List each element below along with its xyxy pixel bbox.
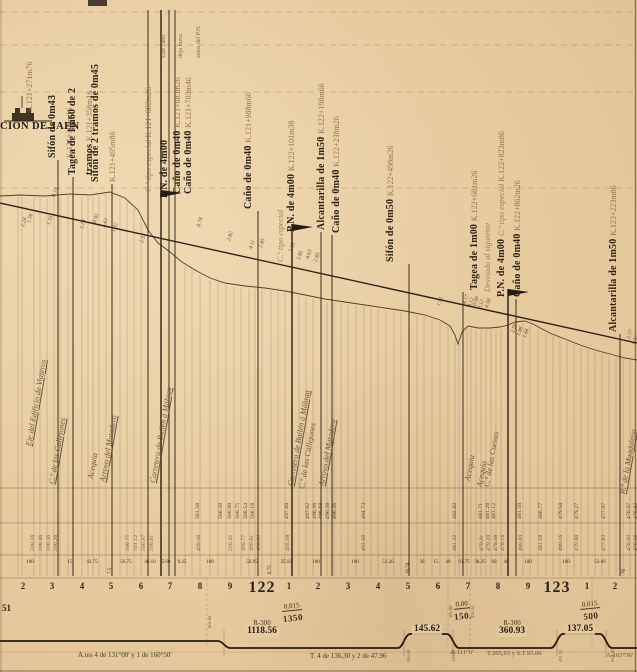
event-label: Sifón de 2 tramos de 0m45K.121+495m86 [85, 64, 120, 182]
elevation-value-terrain: 500.50 [218, 503, 224, 519]
elevation-value-grade: 481.32 [452, 535, 458, 551]
distance-value: 56.95 [246, 560, 257, 565]
elevation-value-grade: 500.75 [125, 535, 131, 551]
elevation-value-grade: 500.81 [149, 535, 155, 551]
event-label-text: Alcantarilla de 1m50 [608, 236, 619, 332]
event-label: Sifón de 0m50 K.122+498m26 [380, 146, 397, 262]
distance-value: 9.25 [178, 560, 187, 565]
elevation-value-grade: 481.68 [538, 535, 544, 551]
elevation-value-grade: 499.61 [249, 535, 255, 551]
curve-band-line [0, 634, 637, 648]
hectometer-number: 3 [346, 581, 351, 591]
distance-value: 51.26 [382, 560, 393, 565]
hectometer-number: 8 [496, 581, 501, 591]
segment-length: 137.05 [565, 625, 595, 635]
elevation-value-terrain: 482.82 [452, 503, 458, 519]
hectometer-number: 7 [466, 581, 471, 591]
curve-angle-note: T.205,93 y S.T.93.06 [487, 650, 541, 657]
distance-value: 100 [524, 560, 532, 565]
elevation-value-terrain: 496.38 [325, 503, 331, 519]
gradient-fraction: 0.015500 [566, 591, 615, 624]
hectometer-number: 6 [436, 581, 441, 591]
elevation-value-grade: 476.98 [633, 535, 637, 551]
event-label: K.121+271m76 [19, 61, 36, 112]
event-label-text: K.121+703m46 [184, 77, 193, 128]
elevation-value-grade: 498.80 [256, 535, 262, 551]
elevation-value-terrain: 500.16 [250, 503, 256, 519]
elevation-value-grade: 499.77 [241, 535, 247, 551]
curve-segment-label: R-3001118.56 [245, 620, 279, 637]
hectometer-number: 2 [21, 581, 26, 591]
elevation-value-grade: 478.16 [500, 535, 506, 551]
event-label-text: K.122+681m26 [470, 171, 479, 222]
elevation-value-grade: 500.46 [38, 535, 44, 551]
hectometer-number: 9 [228, 581, 233, 591]
distance-value: 100 [351, 560, 359, 565]
event-label: Caño de 0m40 K.121+703m46 [178, 77, 195, 194]
event-label-text: Caño de 0m40 [512, 231, 523, 297]
event-label-text: Caño de 0m40 [243, 143, 254, 209]
elevation-value-grade: 501.12 [133, 535, 139, 551]
hectometer-number: 9 [526, 581, 531, 591]
elevation-value-terrain: 494.73 [361, 503, 367, 519]
event-label: Alcantarilla de 1m50 K.123+223m86 [603, 185, 620, 332]
event-label-text: C.º tipo especial [497, 182, 506, 236]
distance-value: 61.75 [458, 560, 469, 565]
hectometer-number: 6 [139, 581, 144, 591]
elevation-value-terrain: 476.97 [626, 503, 632, 519]
curve-segment-label: 145.62 [412, 625, 442, 635]
elevation-value-grade: 500.35 [228, 535, 234, 551]
event-label: Caño de 0m40 K.122+862m26 [507, 180, 524, 297]
segment-length: 360.93 [497, 627, 527, 637]
distance-value: 15 [68, 560, 73, 565]
event-label-text: Sifón de 0m50 [385, 196, 396, 262]
event-label-text: deja fuera [178, 34, 184, 58]
event-label: Caño de 0m40 K.121+988m66 [238, 92, 255, 209]
segment-length: 1118.56 [245, 627, 279, 637]
event-label: P.N. de 4m00 K.122+101m38 [281, 121, 298, 232]
event-label-text: K.123+223m86 [609, 185, 618, 236]
elevation-value-grade: 479.88 [574, 535, 580, 551]
band-station: 456.44 [470, 606, 475, 618]
elevation-value-grade: 500.97 [141, 535, 147, 551]
distance-value: 53.66 [594, 560, 605, 565]
curve-angle-note: A-103°36' [606, 652, 633, 659]
elevation-value-terrain: 500.75 [235, 503, 241, 519]
event-label-text: P.N. de 4m00 [286, 171, 297, 232]
event-label-text: K.121+495m86 [108, 131, 117, 182]
elevation-value-grade: 477.83 [601, 535, 607, 551]
event-label-text: C.º tipo especial [144, 138, 153, 192]
event-label-text: K.121+682m26 [144, 87, 153, 138]
event-label-text: Sifón de 2 tramos de 0m45 [90, 64, 101, 182]
elevation-value-grade: 480.80 [518, 535, 524, 551]
elevation-value-terrain: 497.88 [284, 503, 290, 519]
hectometer-number: 3 [50, 581, 55, 591]
hectometer-number: 4 [376, 581, 381, 591]
event-label-text: K.122+498m26 [386, 146, 395, 197]
elevation-value-grade: 500.56 [30, 535, 36, 551]
band-station: 866.04 [207, 616, 212, 628]
hectometer-number: 5 [109, 581, 114, 591]
elevation-value-grade: 478.90 [626, 535, 632, 551]
bottom-note: T. 4 de 136,30 y 2 de 47.96 [310, 652, 386, 660]
event-label-text: K.122+101m38 [287, 121, 296, 172]
event-label: C.º tipo especial K.121+682m26 [138, 87, 155, 192]
distance-value: 100 [206, 560, 214, 565]
elevation-value-terrain: 481.71 [478, 503, 484, 519]
distance-value: 36 [420, 560, 425, 565]
hectometer-number: 7 [168, 581, 173, 591]
event-label-text: K.122+823m86 [497, 131, 506, 182]
distance-value: 60 [492, 560, 497, 565]
elevation-value-terrain: 477.97 [601, 503, 607, 519]
event-label: Este cañodeja fueraantes del P.N. [152, 25, 204, 58]
curve-segment-label: 137.05 [565, 625, 595, 635]
hectometer-number: 8 [198, 581, 203, 591]
distance-value: 15 [434, 560, 439, 565]
elevation-value-grade: 491.68 [361, 535, 367, 551]
gradient-value: 0.015 [579, 599, 600, 610]
band-station: 306.08 [448, 606, 453, 618]
distance-value: 35.10 [280, 560, 291, 565]
hectometer-number: 2 [316, 581, 321, 591]
hectometer-number: 4 [80, 581, 85, 591]
elevation-value-terrain: 500.90 [227, 503, 233, 519]
event-label-text: Sifón de 0m43 [47, 95, 58, 158]
elevation-value-terrain: 476.82 [633, 503, 637, 519]
event-label-text: K.121+271m76 [25, 61, 34, 112]
curve-angle-note: A-111°6' [450, 649, 473, 656]
gradient-value: 0.00 [453, 599, 470, 610]
event-label-text: K.122+238m26 [332, 116, 341, 167]
distance-value: 56.75 [120, 560, 131, 565]
event-label-text: antes del P.N. [196, 25, 202, 58]
elevation-value-grade: 500.36 [46, 535, 52, 551]
elevation-value-terrain: 480.77 [538, 503, 544, 519]
elevation-value-terrain: 479.58 [558, 503, 564, 519]
event-label: Caño de 0m40 K.122+238m26 [326, 116, 343, 233]
distance-value: 8.75 [268, 565, 273, 574]
distance-value: 100 [312, 560, 320, 565]
distance-value: 46.10 [144, 560, 155, 565]
event-label-text: Caño de 0m40 [331, 167, 342, 233]
event-label: P.N. de 4m00 C.º tipo especial K.122+823… [491, 131, 508, 297]
distance-value: 7.5 [108, 568, 113, 574]
distance-value: 76 [622, 569, 627, 574]
elevation-value-terrain: 497.02 [305, 503, 311, 519]
curve-segment-label: R-300360.93 [497, 620, 527, 637]
scan-mark [88, 0, 107, 6]
elevation-value-grade: 500.26 [53, 535, 59, 551]
distance-value: 38.25 [474, 560, 485, 565]
hectometer-number: 1 [585, 581, 590, 591]
elevation-value-terrain: 481.50 [517, 503, 523, 519]
hectometer-number: 2 [613, 581, 618, 591]
elevation-value-grade: 495.08 [285, 535, 291, 551]
gradient-value: 0.015 [281, 601, 302, 612]
left-edge-cut-number: 51 [2, 603, 11, 613]
band-station: 984.60 [406, 650, 411, 662]
event-label-text: K.121+988m66 [244, 92, 253, 143]
hectometer-number: 1 [287, 581, 292, 591]
elevation-value-terrain: 496.26 [332, 503, 338, 519]
distance-value: 40 [504, 560, 509, 565]
elevation-value-terrain: 501.56 [195, 503, 201, 519]
elevation-value-grade: 499.06 [196, 535, 202, 551]
event-label-text: K.122+862m26 [513, 180, 522, 231]
distance-value: 100 [26, 560, 34, 565]
elevation-value-terrain: 479.27 [574, 503, 580, 519]
event-label-text: Este caño [161, 35, 167, 58]
gradient-fraction: 0.00150. [438, 591, 487, 624]
distance-value: 43.75 [86, 560, 97, 565]
event-label-text: K.122+198m66 [317, 83, 326, 134]
band-station: 491.15 [558, 650, 563, 662]
elevation-value-grade: 478.08 [493, 535, 499, 551]
profile-sheet: CIÓN DE JAEN 51 K.121+271m76Sifón de 0m4… [0, 0, 637, 672]
event-label-text: P.N. de 4m00 [496, 236, 507, 297]
distance-value: 16.74 [406, 563, 411, 574]
elevation-value-terrain: 500.54 [243, 503, 249, 519]
distance-value: 5.60 [162, 560, 171, 565]
bottom-note: A.tes 4 de 131°08' y 1 de 160°50' [78, 651, 172, 659]
event-label-text: Caño de 0m40 [183, 128, 194, 194]
station-building-icon [12, 113, 34, 121]
elevation-value-terrain: 481.12 [491, 503, 497, 519]
segment-length: 145.62 [412, 625, 442, 635]
elevation-value-grade: 479.31 [479, 535, 485, 551]
distance-value: 40 [446, 560, 451, 565]
km-post: 122 [249, 579, 276, 597]
elevation-value-terrain: 496.68 [318, 503, 324, 519]
hectometer-number: 5 [406, 581, 411, 591]
distance-value: 100 [562, 560, 570, 565]
event-label-text: Tagea de 1m60 de 2 [67, 88, 78, 175]
elevation-value-grade: 480.16 [558, 535, 564, 551]
elevation-value-grade: 479.20 [486, 535, 492, 551]
